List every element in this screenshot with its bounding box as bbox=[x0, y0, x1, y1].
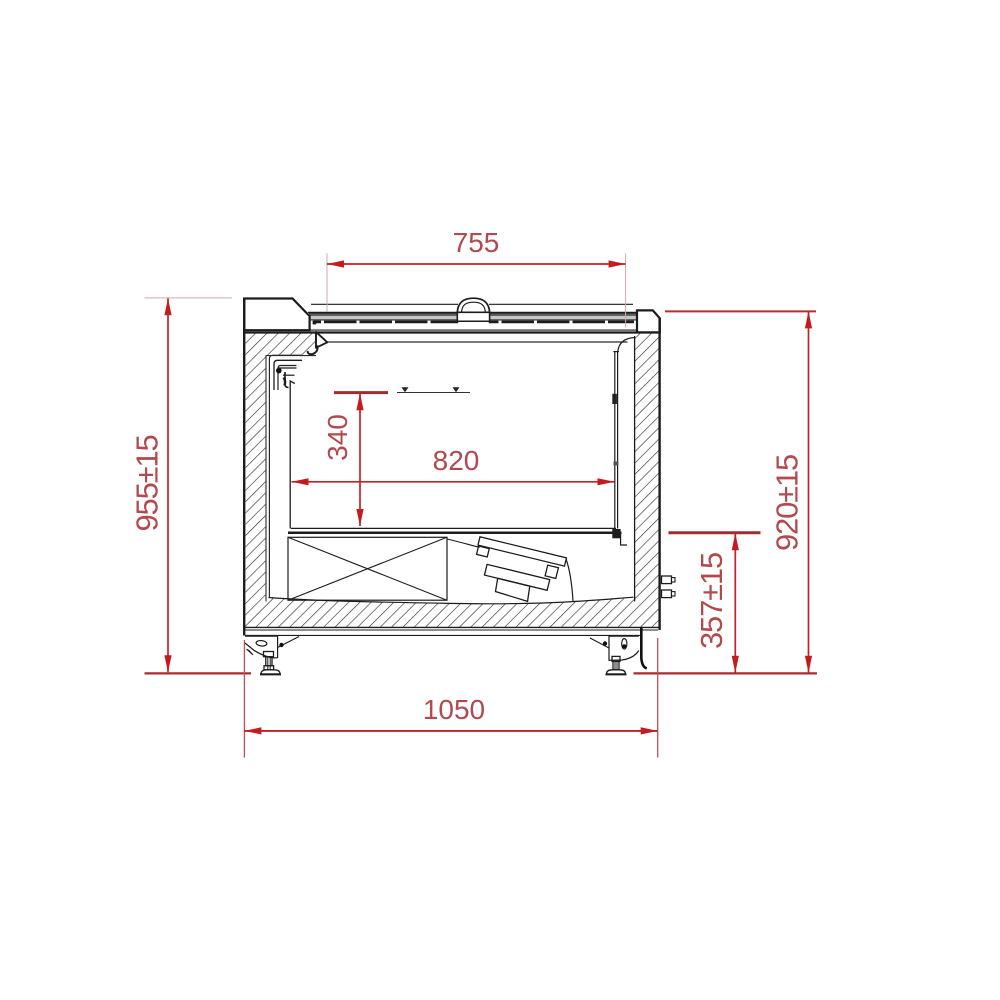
svg-text:755: 755 bbox=[453, 227, 500, 258]
svg-text:1050: 1050 bbox=[423, 694, 485, 725]
svg-text:820: 820 bbox=[433, 445, 480, 476]
svg-text:920±15: 920±15 bbox=[770, 455, 805, 551]
svg-text:955±15: 955±15 bbox=[130, 435, 165, 531]
svg-text:340: 340 bbox=[322, 414, 353, 461]
svg-text:357±15: 357±15 bbox=[694, 553, 729, 649]
